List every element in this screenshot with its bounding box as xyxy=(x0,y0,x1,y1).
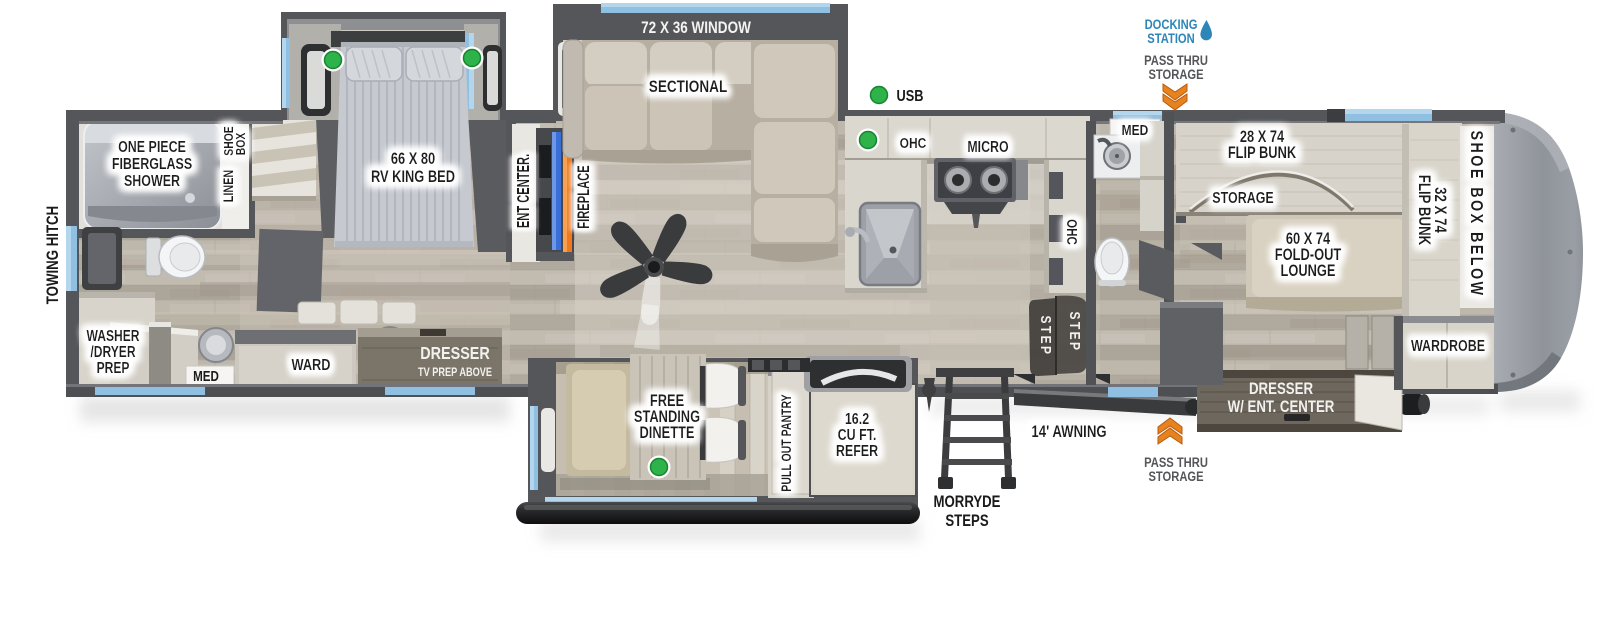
svg-text:72 X 36 WINDOW: 72 X 36 WINDOW xyxy=(641,19,751,38)
svg-text:66 X 80: 66 X 80 xyxy=(391,151,435,169)
svg-text:FIBERGLASS: FIBERGLASS xyxy=(112,156,192,174)
svg-text:FIREPLACE: FIREPLACE xyxy=(575,165,594,229)
svg-text:WARDROBE: WARDROBE xyxy=(1411,338,1485,356)
svg-text:MORRYDE: MORRYDE xyxy=(934,493,1001,512)
svg-text:STEP: STEP xyxy=(1038,316,1055,357)
svg-text:LINEN: LINEN xyxy=(221,170,236,202)
svg-text:FLIP BUNK: FLIP BUNK xyxy=(1228,145,1297,163)
svg-text:MED: MED xyxy=(193,368,219,385)
svg-text:OHC: OHC xyxy=(1064,219,1081,245)
svg-text:14' AWNING: 14' AWNING xyxy=(1031,423,1106,442)
svg-text:TV PREP ABOVE: TV PREP ABOVE xyxy=(418,367,492,379)
svg-text:ENT CENTER.: ENT CENTER. xyxy=(513,154,533,228)
svg-text:STORAGE: STORAGE xyxy=(1212,190,1273,208)
svg-text:LOUNGE: LOUNGE xyxy=(1280,263,1335,281)
svg-text:STORAGE: STORAGE xyxy=(1148,469,1203,484)
svg-text:RV KING BED: RV KING BED xyxy=(371,169,455,187)
svg-text:BOX: BOX xyxy=(234,133,248,156)
svg-text:SECTIONAL: SECTIONAL xyxy=(649,78,727,97)
svg-text:STATION: STATION xyxy=(1147,31,1194,46)
svg-text:FLIP BUNK: FLIP BUNK xyxy=(1415,175,1434,245)
svg-text:DRESSER: DRESSER xyxy=(420,344,490,364)
svg-text:DINETTE: DINETTE xyxy=(639,425,694,443)
svg-text:SHOE BOX BELOW: SHOE BOX BELOW xyxy=(1467,130,1487,297)
svg-text:OHC: OHC xyxy=(900,135,927,152)
svg-text:MED: MED xyxy=(1122,122,1149,139)
svg-text:MICRO: MICRO xyxy=(967,138,1008,156)
svg-text:TOWING HITCH: TOWING HITCH xyxy=(44,206,63,304)
svg-text:DRESSER: DRESSER xyxy=(1249,380,1313,399)
svg-text:WARD: WARD xyxy=(291,357,330,375)
svg-text:PULL OUT PANTRY: PULL OUT PANTRY xyxy=(779,394,795,491)
svg-text:STEPS: STEPS xyxy=(945,512,988,531)
svg-text:STORAGE: STORAGE xyxy=(1148,67,1203,82)
svg-text:REFER: REFER xyxy=(836,443,879,461)
svg-text:ONE PIECE: ONE PIECE xyxy=(118,139,186,157)
svg-text:W/ ENT. CENTER: W/ ENT. CENTER xyxy=(1228,398,1335,417)
svg-text:STEP: STEP xyxy=(1067,312,1084,353)
svg-text:PREP: PREP xyxy=(97,359,130,377)
svg-text:SHOWER: SHOWER xyxy=(124,173,181,191)
svg-text:USB: USB xyxy=(896,88,923,106)
